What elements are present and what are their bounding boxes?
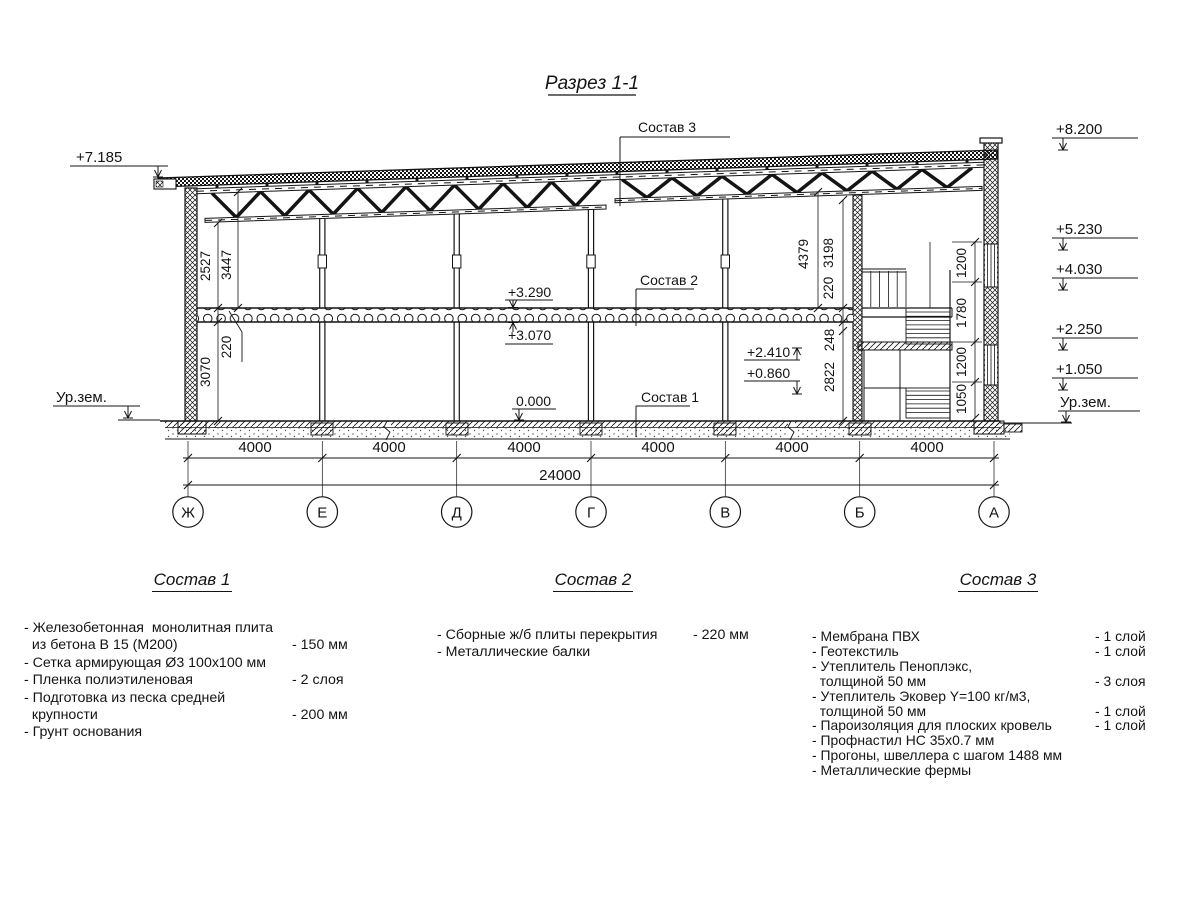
item-text: - Подготовка из песка средней [24, 690, 225, 706]
purlin-icon [266, 183, 269, 186]
truss-web [672, 178, 697, 196]
composition-2-title-text: Состав 2 [553, 570, 634, 592]
elevation-arrow [516, 413, 520, 420]
elevation-arrow [1063, 243, 1067, 250]
truss-web [552, 182, 576, 206]
purlin-icon [766, 167, 769, 170]
elevation-arrow [797, 387, 801, 394]
item-text: - Пароизоляция для плоских кровель [812, 717, 1052, 733]
dim-2822: 2822 [822, 362, 837, 392]
dim-3198: 3198 [821, 238, 836, 268]
item-text: - Железобетонная монолитная плита [24, 620, 273, 636]
elevation-arrow [794, 348, 798, 355]
axis-label-e: Е [317, 505, 327, 522]
truss-web [503, 183, 527, 207]
list-item: крупности- 200 мм [24, 707, 360, 724]
leader-label-sostav3: Состав 3 [638, 119, 696, 135]
wall-left [185, 188, 197, 421]
leader-label-sostav2: Состав 2 [640, 272, 698, 288]
composition-1-title-text: Состав 1 [152, 570, 233, 592]
purlin-icon [866, 163, 869, 166]
composition-3-title: Состав 3 [812, 570, 1184, 592]
foundation-pad [714, 423, 736, 435]
level-zero: 0.000 [516, 393, 551, 409]
truss-web [697, 176, 722, 196]
elevation-arrow [128, 411, 132, 418]
elevation-arrow [1060, 283, 1064, 290]
level-slab-top: +3.290 [508, 284, 551, 300]
axis-label-v: В [720, 505, 730, 522]
purlin-icon [816, 165, 819, 168]
composition-3-block: Состав 3 - Мембрана ПВХ- 1 слой - Геотек… [812, 570, 1184, 778]
truss-web [947, 168, 972, 188]
truss-web [309, 190, 333, 214]
item-value: - 2 слоя [292, 672, 344, 689]
elevation-arrow [797, 348, 801, 355]
axis-label-g: Г [587, 505, 595, 522]
purlin-icon [566, 173, 569, 176]
elevation-right-2250: +2.250 [1056, 321, 1102, 338]
truss-web [722, 176, 747, 194]
dim-4379: 4379 [796, 239, 811, 269]
purlin-icon [966, 160, 969, 163]
elevation-arrow [1060, 383, 1064, 390]
composition-2-list: - Сборные ж/б плиты перекрытия- 220 мм -… [437, 627, 749, 661]
list-item: - Пленка полиэтиленовая- 2 слоя [24, 672, 360, 689]
dim-2527: 2527 [198, 251, 213, 281]
column-splice-plate [721, 255, 729, 268]
axis-label-b: Б [855, 505, 865, 522]
truss-web [847, 171, 872, 191]
item-text: - Утеплитель Эковер Y=100 кг/м3, [812, 688, 1030, 704]
item-text: из бетона В 15 (М200) [24, 637, 178, 653]
item-value: - 3 слоя [1095, 674, 1146, 689]
item-text: крупности [24, 707, 98, 723]
composition-3-list: - Мембрана ПВХ- 1 слой - Геотекстиль- 1 … [812, 629, 1184, 778]
item-text: - Геотекстиль [812, 643, 899, 659]
dim-1780: 1780 [954, 298, 969, 328]
column-splice-plate [587, 255, 595, 268]
item-text: - Пленка полиэтиленовая [24, 672, 193, 688]
leader-label-sostav1: Состав 1 [641, 389, 699, 405]
item-value: - 1 слой [1095, 629, 1146, 644]
list-item: - Металлические балки [437, 644, 749, 661]
item-value: - 1 слой [1095, 644, 1146, 659]
truss-web [212, 193, 236, 217]
elevation-arrow [1060, 143, 1064, 150]
span-dim: 4000 [507, 439, 540, 456]
item-text: - Утеплитель Пеноплэкс, [812, 658, 972, 674]
list-item: - Прогоны, швеллера с шагом 1488 мм [812, 748, 1184, 763]
truss-web [285, 190, 309, 216]
total-dim: 24000 [539, 467, 581, 484]
truss-web [647, 178, 672, 198]
truss-web [622, 179, 647, 197]
elevation-arrow [519, 413, 523, 420]
item-text: - Грунт основания [24, 724, 142, 740]
purlin-icon [316, 182, 319, 185]
list-item: - Пароизоляция для плоских кровель- 1 сл… [812, 718, 1184, 733]
section-drawing-sheet: Разрез 1-1 Состав 3 Состав 2 Состав 1 +7… [0, 0, 1200, 900]
truss-web [772, 174, 797, 192]
span-dim: 4000 [775, 439, 808, 456]
list-item: - Утеплитель Эковер Y=100 кг/м3, [812, 689, 1184, 704]
truss-web [382, 187, 406, 213]
stair-upper-flight [906, 308, 950, 344]
composition-1-title: Состав 1 [24, 570, 360, 592]
level-stair-a: +2.410 [747, 344, 790, 360]
item-text: - Сетка армирующая Ø3 100x100 мм [24, 655, 266, 671]
wall-axis-b [853, 195, 862, 421]
elevation-arrow [1066, 415, 1070, 422]
list-item: - Профнастил НС 35x0.7 мм [812, 733, 1184, 748]
dim-220-right: 220 [821, 277, 836, 300]
labels-layer: Разрез 1-1 Состав 3 Состав 2 Состав 1 +7… [56, 73, 1111, 522]
truss-web [576, 180, 600, 206]
stair-landing [858, 342, 952, 350]
elevation-right-5230: +5.230 [1056, 221, 1102, 238]
elevation-arrow [125, 411, 129, 418]
axis-label-zh: Ж [181, 505, 195, 522]
item-value: - 1 слой [1095, 718, 1146, 733]
list-item: - Железобетонная монолитная плита [24, 620, 360, 637]
dim-1050: 1050 [954, 384, 969, 414]
truss-web [406, 187, 430, 211]
elevation-arrow [158, 170, 162, 177]
axis-label-d: Д [452, 505, 462, 522]
list-item: толщиной 50 мм- 3 слоя [812, 674, 1184, 689]
span-dim: 4000 [910, 439, 943, 456]
dim-3447: 3447 [219, 250, 234, 280]
composition-2-block: Состав 2 - Сборные ж/б плиты перекрытия-… [437, 570, 749, 661]
span-dim: 4000 [641, 439, 674, 456]
elevation-left-top: +7.185 [76, 149, 122, 166]
item-text: толщиной 50 мм [812, 673, 926, 689]
truss-web [922, 169, 947, 187]
stair-lower-flight [906, 388, 950, 418]
truss-web [333, 188, 357, 214]
item-text: толщиной 50 мм [812, 703, 926, 719]
item-text: - Сборные ж/б плиты перекрытия [437, 627, 657, 643]
level-stair-b: +0.860 [747, 365, 790, 381]
list-item: - Мембрана ПВХ- 1 слой [812, 629, 1184, 644]
hollow-core-slab [197, 309, 853, 322]
span-dim: 4000 [238, 439, 271, 456]
list-item: - Сетка армирующая Ø3 100x100 мм [24, 655, 360, 672]
elevation-right-8200: +8.200 [1056, 121, 1102, 138]
ground-level-right: Ур.зем. [1060, 394, 1111, 411]
axis-label-a: А [989, 505, 999, 522]
truss-web [455, 185, 479, 209]
truss-web [897, 169, 922, 189]
elevation-arrow [513, 301, 517, 308]
column-splice-plate [453, 255, 461, 268]
dim-248: 248 [822, 329, 837, 352]
elevation-arrow [794, 387, 798, 394]
purlin-icon [516, 175, 519, 178]
foundation-pad [311, 423, 333, 435]
elevation-arrow [1063, 343, 1067, 350]
composition-3-title-text: Состав 3 [958, 570, 1039, 592]
purlin-icon [466, 177, 469, 180]
item-value: - 220 мм [693, 627, 749, 644]
purlin-icon [366, 180, 369, 183]
elevation-right-1050: +1.050 [1056, 361, 1102, 378]
list-item: - Сборные ж/б плиты перекрытия- 220 мм [437, 627, 749, 644]
dim-220-left: 220 [219, 336, 234, 359]
composition-1-list: - Железобетонная монолитная плита из бет… [24, 620, 360, 742]
list-item: из бетона В 15 (М200)- 150 мм [24, 637, 360, 654]
elevation-arrow [510, 301, 514, 308]
purlin-icon [666, 170, 669, 173]
item-text: - Профнастил НС 35x0.7 мм [812, 732, 994, 748]
list-item: - Геотекстиль- 1 слой [812, 644, 1184, 659]
truss-web [236, 192, 260, 218]
dim-1200-b: 1200 [954, 347, 969, 377]
item-text: - Металлические фермы [812, 762, 971, 778]
item-value: - 200 мм [292, 707, 348, 724]
purlin-icon [216, 185, 219, 188]
elevation-arrow [1060, 243, 1064, 250]
column-splice-plate [318, 255, 326, 268]
purlin-icon [716, 168, 719, 171]
truss-web [479, 183, 503, 209]
truss-web [430, 185, 454, 211]
truss-web [527, 182, 551, 208]
span-dim: 4000 [372, 439, 405, 456]
entry-pad [1004, 424, 1022, 432]
item-value: - 150 мм [292, 637, 348, 654]
elevation-arrow [155, 170, 159, 177]
elevation-arrow [1063, 415, 1067, 422]
elevation-arrow [1063, 143, 1067, 150]
purlin-icon [416, 178, 419, 181]
ground-level-left: Ур.зем. [56, 389, 107, 406]
elevation-arrow [1060, 343, 1064, 350]
composition-1-block: Состав 1 - Железобетонная монолитная пли… [24, 570, 360, 742]
dim-3070: 3070 [198, 357, 213, 387]
parapet-cap [980, 138, 1002, 143]
composition-2-title: Состав 2 [437, 570, 749, 592]
truss-web [747, 174, 772, 194]
list-item: - Утеплитель Пеноплэкс, [812, 659, 1184, 674]
list-item: - Металлические фермы [812, 763, 1184, 778]
drawing-title: Разрез 1-1 [545, 73, 639, 94]
item-text: - Металлические балки [437, 644, 590, 660]
purlin-icon [616, 172, 619, 175]
truss-web [358, 188, 382, 212]
foundation-pad [580, 423, 602, 435]
dim-1200-a: 1200 [954, 248, 969, 278]
truss-web [822, 173, 847, 191]
list-item: - Подготовка из песка средней [24, 690, 360, 707]
item-value: - 1 слой [1095, 704, 1146, 719]
truss-web [872, 171, 897, 189]
list-item: толщиной 50 мм- 1 слой [812, 704, 1184, 719]
roof-edge-insert [156, 181, 163, 187]
truss-web [797, 173, 822, 193]
elevation-right-4030: +4.030 [1056, 261, 1102, 278]
section-drawing: Разрез 1-1 Состав 3 Состав 2 Состав 1 +7… [0, 0, 1200, 560]
list-item: - Грунт основания [24, 724, 360, 741]
item-text: - Прогоны, швеллера с шагом 1488 мм [812, 747, 1062, 763]
elevation-arrow [1063, 283, 1067, 290]
foundation-pad [849, 423, 871, 435]
purlin-icon [916, 162, 919, 165]
foundation-pad [446, 423, 468, 435]
level-slab-bottom: +3.070 [508, 327, 551, 343]
elevation-arrow [1063, 383, 1067, 390]
truss-web [261, 192, 285, 216]
item-text: - Мембрана ПВХ [812, 628, 920, 644]
